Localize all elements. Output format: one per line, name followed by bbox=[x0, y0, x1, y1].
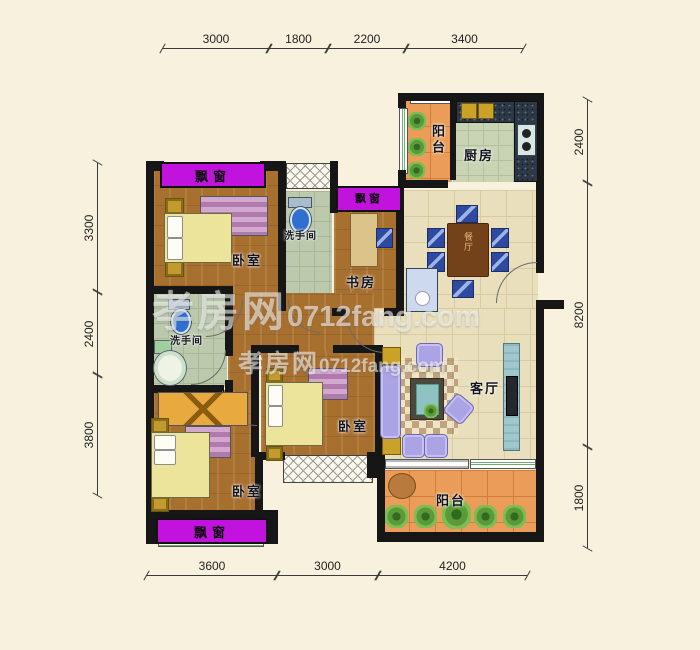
sofa-chair-bottom bbox=[424, 434, 448, 458]
bay-window-label: 飘窗 bbox=[162, 166, 264, 185]
dim-value: 4200 bbox=[378, 559, 527, 573]
room-label-bedroom-top: 卧室 bbox=[232, 250, 262, 269]
sink bbox=[478, 103, 494, 119]
wall-balcony-bottom-west bbox=[377, 455, 385, 540]
floor-plan: 飘窗 飘窗 飘窗 餐厅 bbox=[0, 0, 700, 650]
desk bbox=[350, 213, 378, 267]
dim-value: 3000 bbox=[163, 32, 269, 46]
nightstand bbox=[266, 446, 283, 461]
dining-chair bbox=[491, 228, 509, 248]
plant bbox=[503, 505, 526, 528]
dining-chair bbox=[456, 205, 478, 223]
pillow bbox=[154, 450, 176, 465]
window-hall-hatch bbox=[286, 163, 334, 189]
dim-value: 3400 bbox=[406, 32, 523, 46]
burner bbox=[522, 142, 531, 151]
watermark-brand: 孝房网 bbox=[152, 288, 287, 335]
sliding-door-balcony bbox=[385, 459, 469, 469]
dim-top-2: 1800 bbox=[269, 48, 328, 49]
dim-value: 3000 bbox=[277, 559, 378, 573]
watermark-large: 孝房网0712fang.com bbox=[152, 278, 480, 339]
dim-bottom-2: 3000 bbox=[277, 575, 378, 576]
dim-value: 1800 bbox=[572, 484, 586, 511]
pillow bbox=[154, 435, 176, 450]
plant bbox=[424, 404, 438, 418]
tv bbox=[506, 376, 518, 416]
dim-left-2: 2400 bbox=[97, 292, 98, 375]
burner bbox=[522, 129, 531, 138]
dim-value: 3800 bbox=[82, 422, 96, 449]
window-bedroom-mid-hatch bbox=[283, 455, 373, 483]
room-label-bathroom-top: 洗手间 bbox=[284, 227, 317, 242]
patio-table bbox=[388, 473, 416, 499]
dim-bottom-3: 4200 bbox=[378, 575, 527, 576]
stove bbox=[517, 124, 536, 156]
dining-label: 餐厅 bbox=[462, 232, 475, 252]
bay-window-label: 飘窗 bbox=[158, 522, 266, 541]
plant bbox=[408, 138, 426, 156]
sink bbox=[461, 103, 477, 119]
pillow bbox=[268, 385, 283, 406]
wall-south bbox=[377, 532, 544, 542]
wardrobe bbox=[158, 392, 248, 426]
wall-north bbox=[398, 93, 544, 101]
dim-top-4: 3400 bbox=[406, 48, 523, 49]
plant bbox=[474, 505, 497, 528]
wall-stub bbox=[398, 93, 406, 108]
sofa-chair-bottom bbox=[402, 434, 425, 458]
dim-left-1: 3300 bbox=[97, 163, 98, 292]
nightstand bbox=[151, 496, 169, 512]
side-table bbox=[382, 437, 401, 455]
bay-window-study: 飘窗 bbox=[336, 186, 402, 212]
dim-right-3: 1800 bbox=[587, 447, 588, 548]
dim-value: 3600 bbox=[147, 559, 277, 573]
dining-chair bbox=[427, 228, 445, 248]
watermark-small: 孝房网0712fang.com bbox=[238, 344, 446, 380]
bay-window-bottom: 飘窗 bbox=[156, 518, 268, 544]
room-label-balcony-bottom: 阳台 bbox=[436, 490, 466, 509]
plant bbox=[408, 112, 426, 130]
watermark-site-small: 0712fang.com bbox=[319, 356, 446, 377]
room-label-kitchen: 厨房 bbox=[464, 145, 494, 164]
dim-value: 8200 bbox=[572, 302, 586, 329]
room-label-bedroom-mid: 卧室 bbox=[338, 416, 368, 435]
bay-window-label: 飘窗 bbox=[338, 190, 400, 206]
wall-east-lower bbox=[536, 303, 544, 542]
window-living-south bbox=[470, 459, 536, 469]
dim-left-3: 3800 bbox=[97, 375, 98, 495]
dim-top-3: 2200 bbox=[328, 48, 406, 49]
pillow bbox=[167, 216, 183, 238]
room-label-bedroom-bottom: 卧室 bbox=[232, 481, 262, 500]
dim-value: 2400 bbox=[82, 320, 96, 347]
plant bbox=[414, 505, 437, 528]
dim-right-1: 2400 bbox=[587, 100, 588, 183]
bathtub bbox=[153, 350, 187, 386]
window-balcony-left bbox=[399, 108, 408, 174]
wall-balcony-top-south bbox=[398, 180, 448, 188]
dim-value: 3300 bbox=[82, 214, 96, 241]
dim-bottom-1: 3600 bbox=[147, 575, 277, 576]
pillow bbox=[268, 406, 283, 427]
dim-right-2: 8200 bbox=[587, 183, 588, 447]
desk-chair bbox=[376, 228, 393, 248]
bay-window-top: 飘窗 bbox=[160, 162, 266, 188]
dining-chair bbox=[491, 252, 509, 272]
dim-top-1: 3000 bbox=[163, 48, 269, 49]
dim-value: 2400 bbox=[572, 128, 586, 155]
room-label-living: 客厅 bbox=[470, 378, 500, 397]
plant bbox=[385, 505, 408, 528]
pillow bbox=[167, 238, 183, 260]
plant bbox=[408, 162, 425, 179]
dim-value: 1800 bbox=[269, 32, 328, 46]
watermark-site: 0712fang.com bbox=[287, 301, 480, 333]
dim-value: 2200 bbox=[328, 32, 406, 46]
dining-table: 餐厅 bbox=[447, 223, 489, 277]
room-label-balcony-top: 阳台 bbox=[428, 124, 447, 156]
watermark-brand-small: 孝房网 bbox=[238, 350, 319, 378]
